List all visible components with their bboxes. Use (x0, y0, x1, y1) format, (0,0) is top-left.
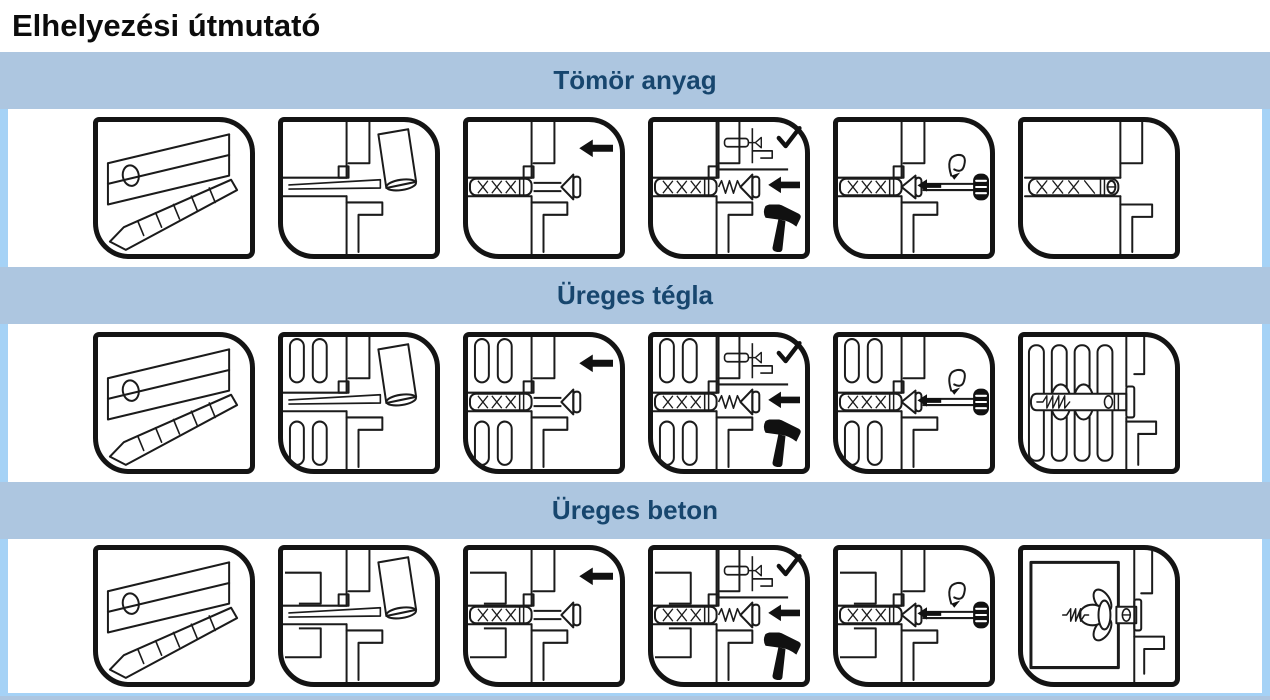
section-header-solid-material: Tömör anyag (0, 52, 1270, 109)
panel-concrete-step-drill-hole (278, 545, 440, 687)
arrow-left-icon (768, 177, 800, 194)
panel-concrete-step-installed (1018, 545, 1180, 687)
anchor-plug (840, 394, 902, 411)
installed-anchor-solid (1025, 122, 1152, 254)
page-title: Elhelyezési útmutató (0, 0, 1270, 52)
hammer-icon (755, 201, 802, 254)
screw (534, 390, 581, 415)
installed-anchor-brick (1029, 337, 1156, 469)
panel-solid-step-fixture-drill (93, 117, 255, 259)
panel-brick-step-installed (1018, 332, 1180, 474)
screw (534, 603, 581, 628)
check-icon (779, 128, 800, 146)
screw-head (902, 176, 922, 199)
step-row-hollow-concrete (0, 539, 1270, 693)
anchor-plug (840, 179, 902, 196)
arrow-left-icon (579, 568, 613, 586)
screw (534, 175, 581, 200)
screwdriver-icon (923, 155, 989, 200)
arrow-left-icon (768, 392, 800, 409)
panel-solid-step-installed (1018, 117, 1180, 259)
panel-brick-step-drill-hole (278, 332, 440, 474)
anchor-plug (470, 179, 532, 196)
panel-brick-step-insert-anchor (463, 332, 625, 474)
panel-brick-step-fixture-drill (93, 332, 255, 474)
screw-with-spring (719, 603, 760, 628)
section-header-hollow-brick: Üreges tégla (0, 267, 1270, 324)
section-header-hollow-concrete: Üreges beton (0, 482, 1270, 539)
panel-solid-step-insert-anchor (463, 117, 625, 259)
anchor-plug (655, 394, 717, 411)
hammer-icon (755, 416, 802, 469)
screw-with-spring (719, 390, 760, 415)
panel-concrete-step-fixture-drill (93, 545, 255, 687)
panel-solid-step-drill-hole (278, 117, 440, 259)
anchor-plug (655, 607, 717, 624)
panel-solid-step-hammer (648, 117, 810, 259)
panel-concrete-step-hammer (648, 545, 810, 687)
installed-anchor-concrete (1031, 550, 1164, 682)
arrow-left-icon (579, 140, 613, 158)
drill-icon (289, 557, 417, 620)
panel-brick-step-screwdriver (833, 332, 995, 474)
screwdriver-icon (923, 583, 989, 628)
panel-concrete-step-screwdriver (833, 545, 995, 687)
step-row-hollow-brick (0, 324, 1270, 482)
panel-brick-step-hammer (648, 332, 810, 474)
check-icon (779, 343, 800, 361)
check-icon (779, 556, 800, 574)
anchor-plug (655, 179, 717, 196)
anchor-plug (470, 394, 532, 411)
drill-bit-icon (108, 134, 237, 250)
drill-bit-icon (108, 562, 237, 678)
step-row-solid-material (0, 109, 1270, 267)
arrow-left-icon (768, 605, 800, 622)
screw-head (902, 391, 922, 414)
screw-with-spring (719, 175, 760, 200)
screwdriver-icon (923, 370, 989, 415)
placement-guide-sheet: Elhelyezési útmutató Tömör anyag (0, 0, 1270, 700)
anchor-plug (470, 607, 532, 624)
drill-icon (289, 129, 417, 192)
drill-icon (289, 344, 417, 407)
panel-concrete-step-insert-anchor (463, 545, 625, 687)
next-section-band-partial (0, 696, 1270, 700)
panel-solid-step-screwdriver (833, 117, 995, 259)
hammer-icon (755, 629, 802, 682)
screw-head (902, 604, 922, 627)
drill-bit-icon (108, 349, 237, 465)
arrow-left-icon (579, 355, 613, 373)
anchor-plug (840, 607, 902, 624)
